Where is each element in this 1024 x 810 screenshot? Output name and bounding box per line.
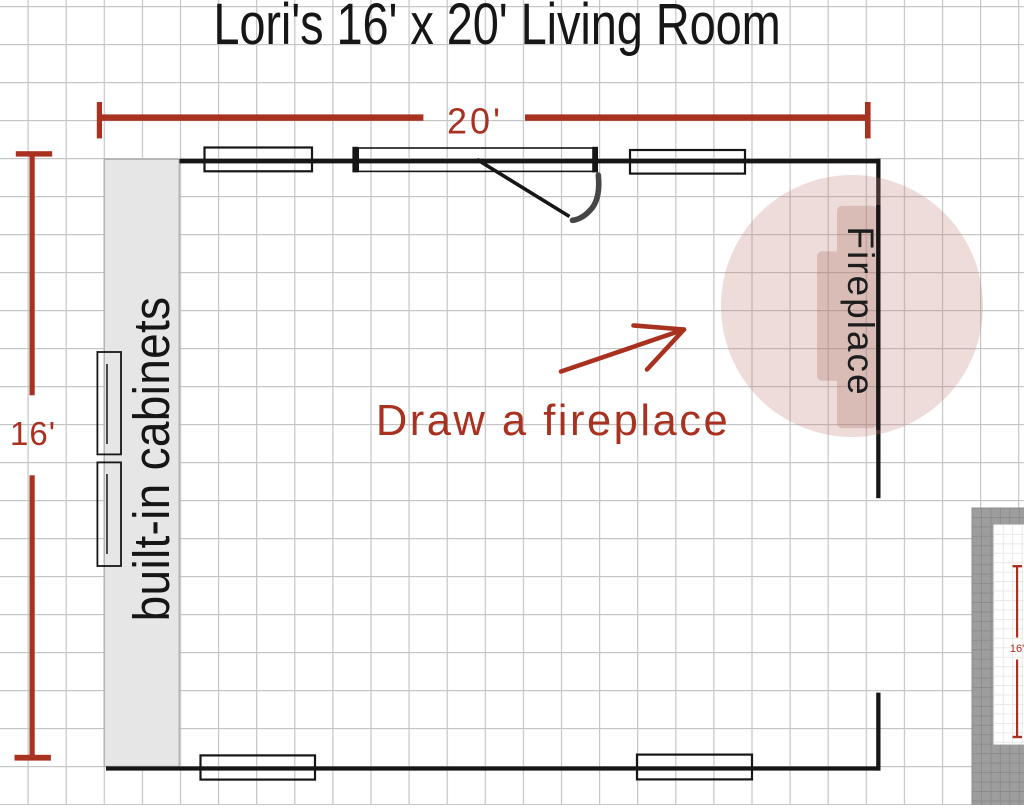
svg-text:built-in cabinets: built-in cabinets [124,297,181,622]
svg-text:Draw a fireplace: Draw a fireplace [376,397,730,445]
svg-text:Fireplace: Fireplace [840,226,881,396]
svg-text:16': 16' [1010,643,1024,655]
svg-text:20': 20' [447,101,503,142]
svg-text:Lori's 16' x 20' Living Room: Lori's 16' x 20' Living Room [213,0,780,57]
svg-text:16': 16' [10,415,56,452]
